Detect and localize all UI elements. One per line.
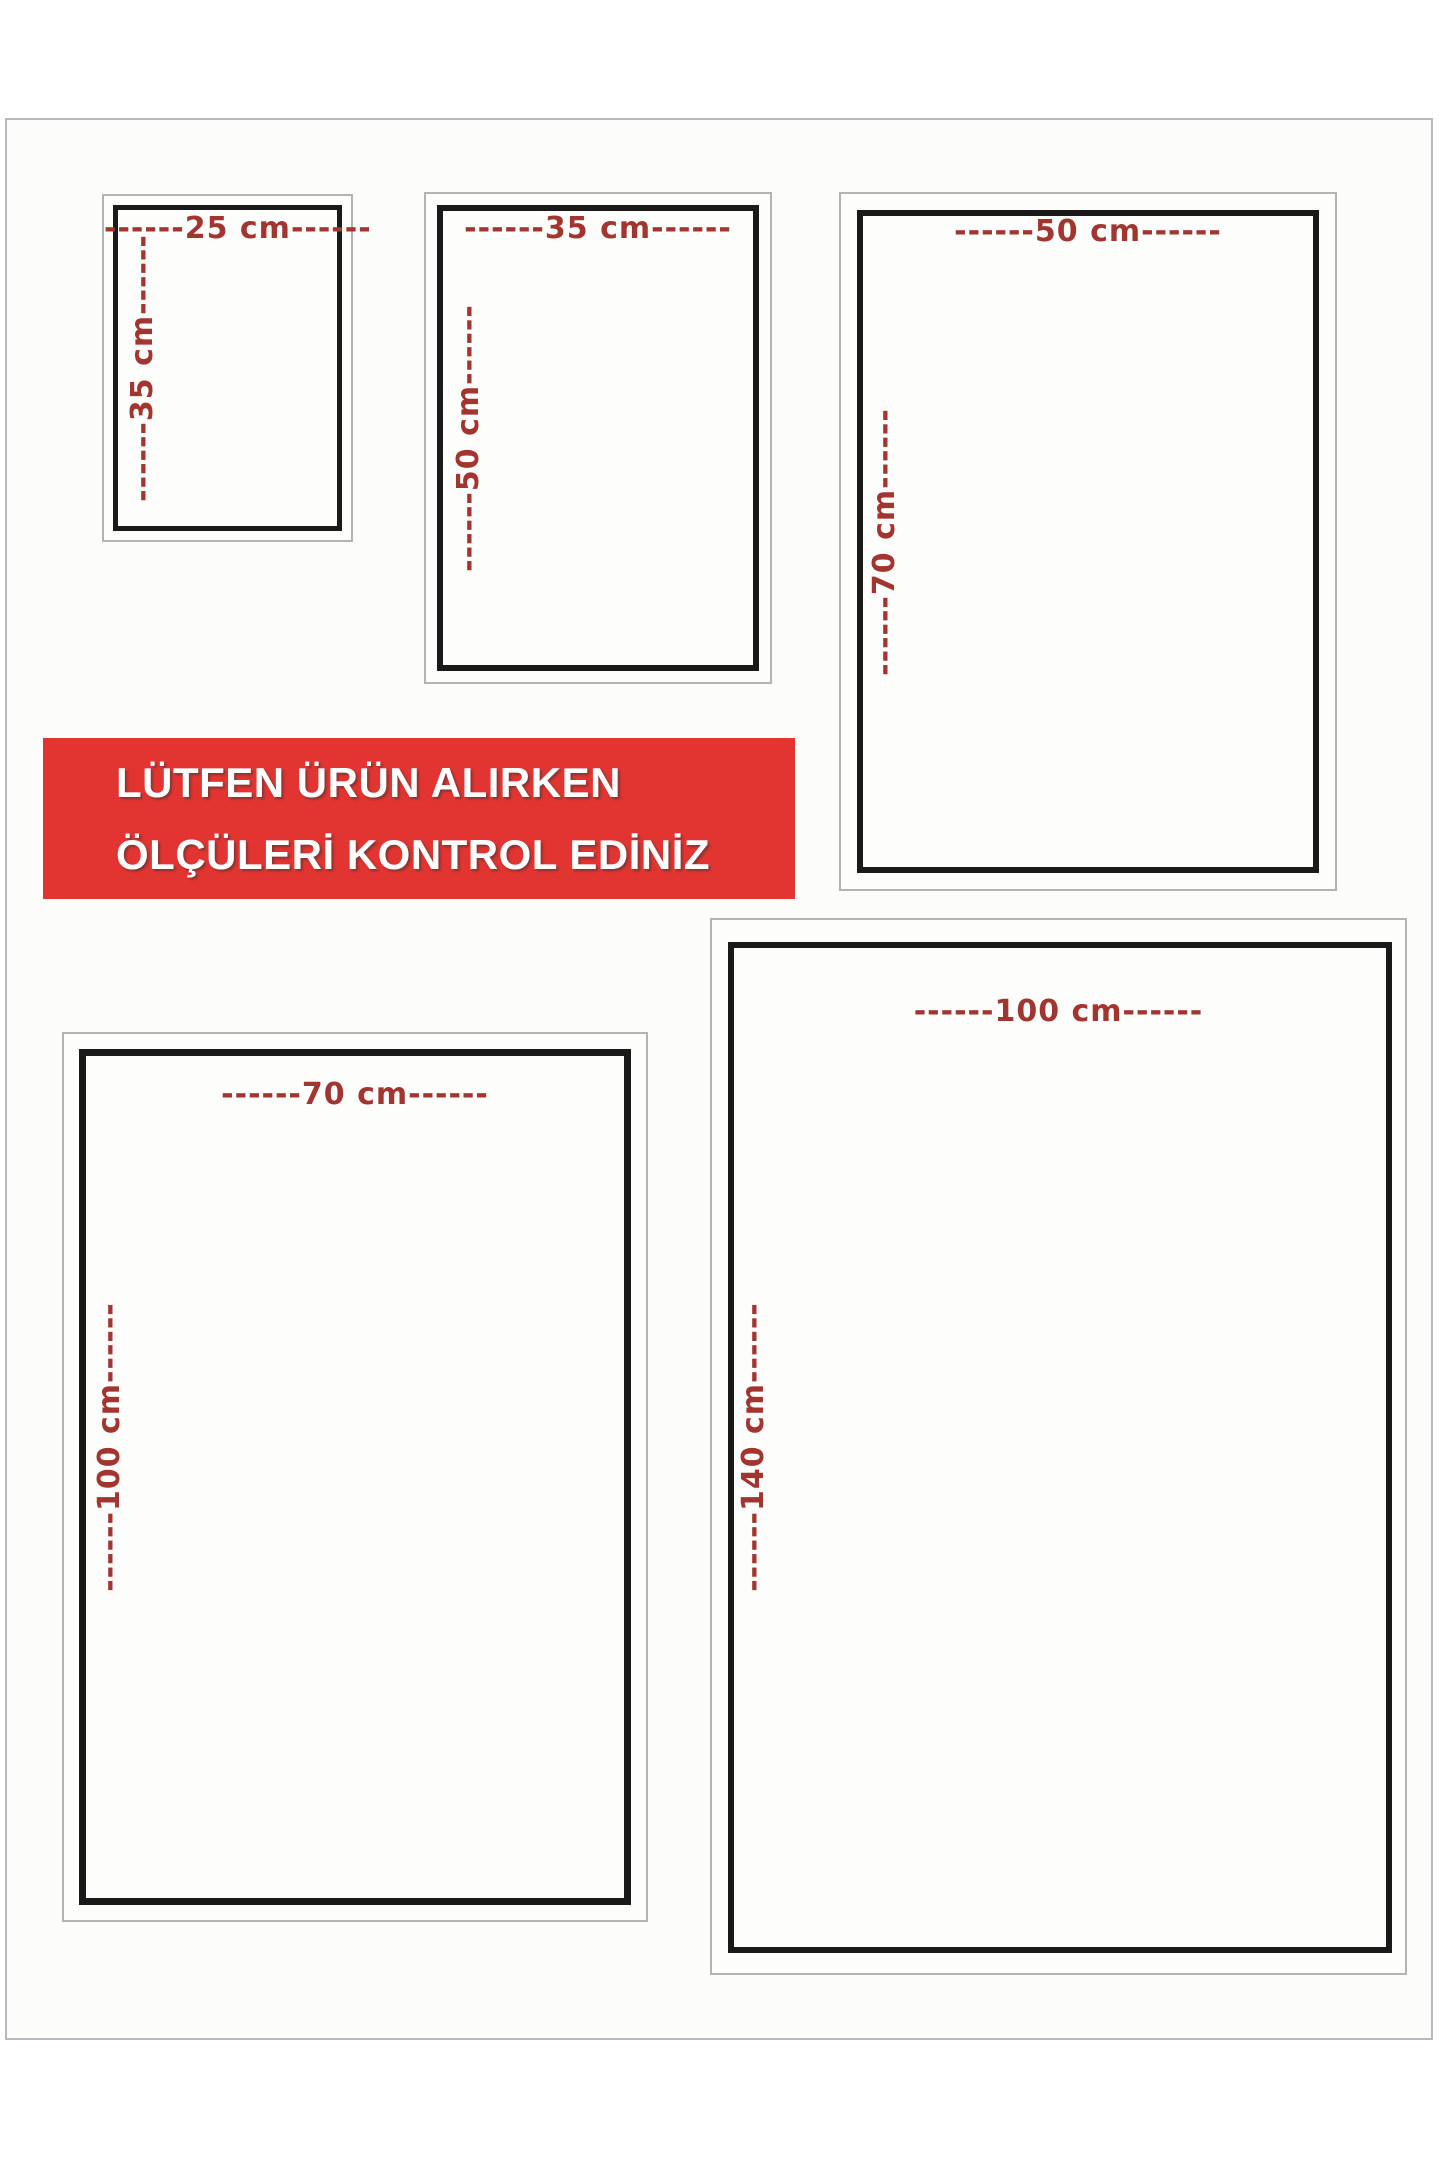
notice-banner: LÜTFEN ÜRÜN ALIRKEN ÖLÇÜLERİ KONTROL EDİ… [43, 738, 795, 899]
size-box-35x50: ------35 cm------ ------50 cm------ [424, 192, 772, 684]
width-dimension-label: ------100 cm------ [712, 994, 1405, 1030]
size-box-70x100: ------70 cm------ ------100 cm------ [62, 1032, 648, 1922]
inner-black-frame [857, 210, 1319, 873]
width-dimension-label: ------70 cm------ [64, 1077, 646, 1113]
notice-banner-line1: LÜTFEN ÜRÜN ALIRKEN [116, 747, 795, 819]
inner-black-frame [79, 1049, 631, 1905]
height-dimension-label: ------70 cm------ [867, 408, 903, 676]
notice-banner-line2: ÖLÇÜLERİ KONTROL EDİNİZ [116, 819, 795, 891]
size-box-25x35: ------25 cm------ ------35 cm------ [102, 194, 353, 542]
size-guide-image: ------25 cm------ ------35 cm------ ----… [0, 0, 1440, 2160]
height-dimension-label: ------100 cm------ [92, 1302, 128, 1592]
width-dimension-label: ------35 cm------ [426, 211, 770, 247]
height-dimension-label: ------35 cm------ [125, 234, 161, 502]
width-dimension-label: ------50 cm------ [841, 214, 1335, 250]
size-box-50x70: ------50 cm------ ------70 cm------ [839, 192, 1337, 891]
inner-black-frame [728, 942, 1392, 1953]
height-dimension-label: ------50 cm------ [451, 304, 487, 572]
size-box-100x140: ------100 cm------ ------140 cm------ [710, 918, 1407, 1975]
height-dimension-label: ------140 cm------ [736, 1302, 772, 1592]
